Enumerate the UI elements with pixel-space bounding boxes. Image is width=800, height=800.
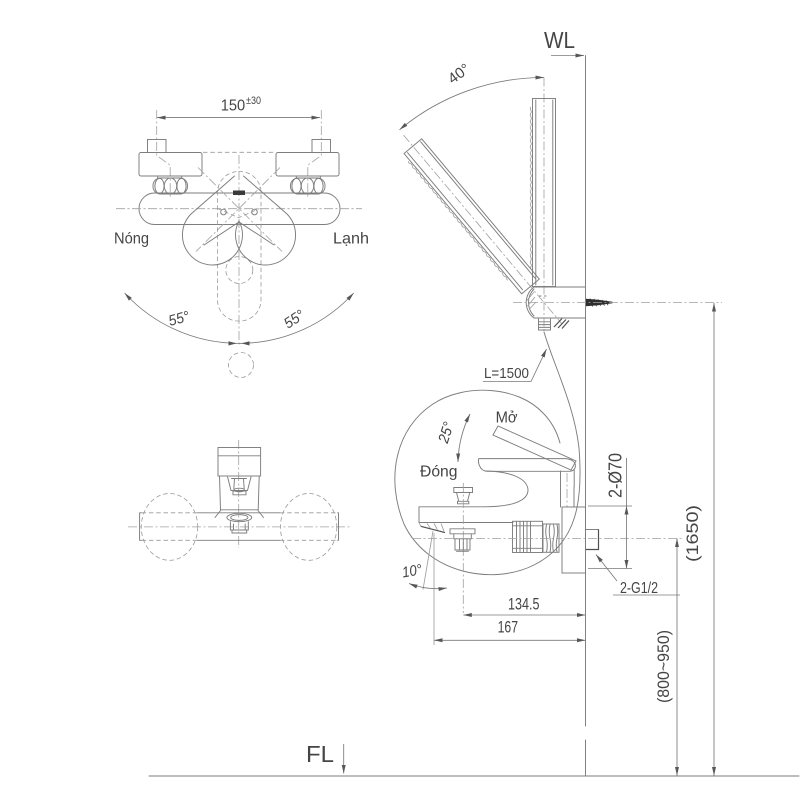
- svg-text:10°: 10°: [401, 561, 424, 581]
- svg-text:FL: FL: [306, 741, 334, 767]
- svg-text:(800~950): (800~950): [655, 630, 673, 703]
- svg-text:2-Ø70: 2-Ø70: [605, 453, 626, 498]
- svg-text:(1650): (1650): [683, 505, 702, 562]
- svg-text:Nóng: Nóng: [114, 231, 149, 248]
- svg-text:150: 150: [221, 98, 246, 115]
- svg-text:Đóng: Đóng: [420, 464, 458, 481]
- svg-text:134.5: 134.5: [508, 596, 540, 614]
- svg-text:2-G1/2: 2-G1/2: [620, 580, 658, 597]
- svg-text:167: 167: [498, 619, 518, 637]
- svg-text:Mở: Mở: [496, 410, 518, 427]
- svg-text:WL: WL: [544, 27, 575, 53]
- svg-text:±30: ±30: [246, 95, 261, 107]
- svg-text:Lạnh: Lạnh: [333, 231, 369, 248]
- svg-text:L=1500: L=1500: [484, 366, 529, 382]
